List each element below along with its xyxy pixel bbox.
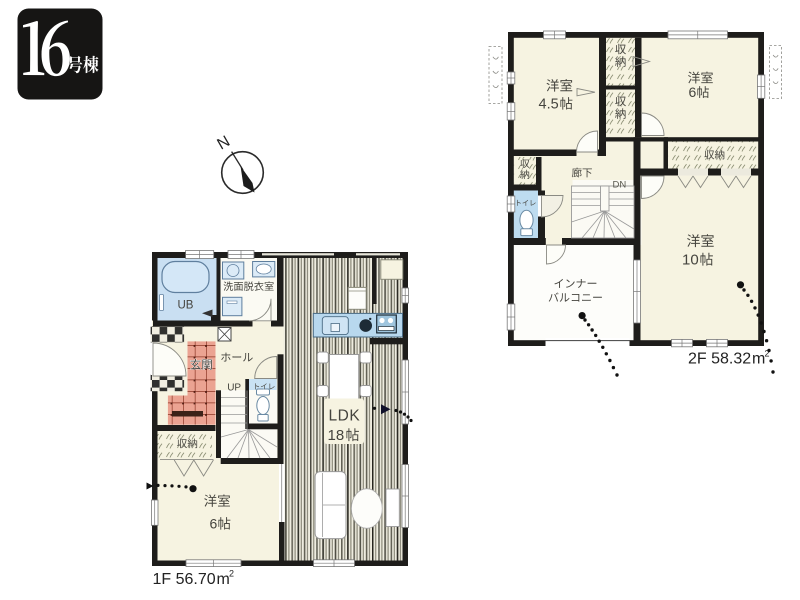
svg-text:6: 6 [210,516,218,532]
svg-text:2: 2 [229,569,234,579]
svg-text:2F 58.32: 2F 58.32 [688,351,751,368]
svg-text:1F 56.70: 1F 56.70 [153,571,216,588]
svg-text:UP: UP [227,383,241,394]
svg-text:UB: UB [178,300,194,312]
svg-text:18: 18 [328,427,345,444]
svg-text:6: 6 [689,84,697,100]
svg-text:10: 10 [682,252,699,269]
svg-text:LDK: LDK [329,408,361,425]
svg-text:4.5: 4.5 [539,97,559,113]
svg-text:m: m [752,351,765,368]
svg-text:DN: DN [613,180,627,191]
svg-text:m: m [217,571,230,588]
